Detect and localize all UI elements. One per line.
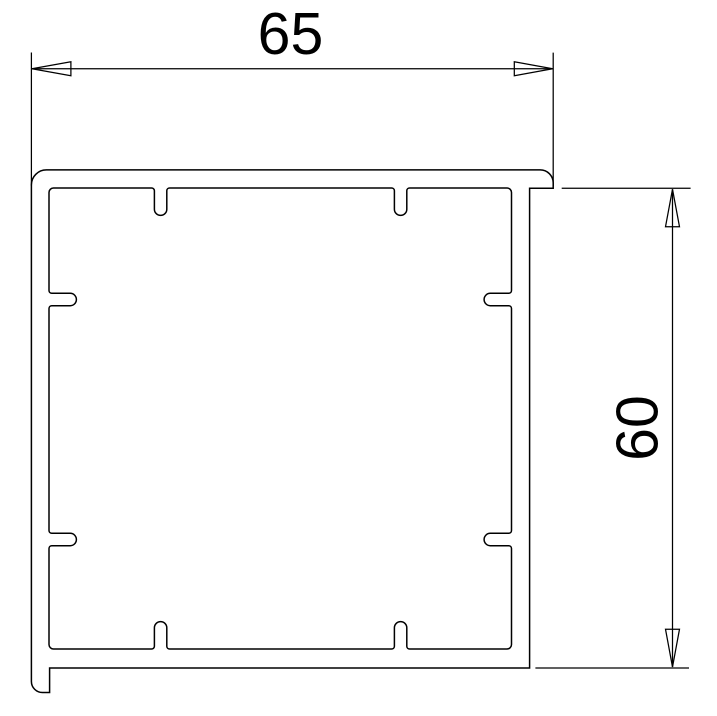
svg-text:60: 60 xyxy=(604,395,670,461)
svg-text:65: 65 xyxy=(258,1,324,67)
